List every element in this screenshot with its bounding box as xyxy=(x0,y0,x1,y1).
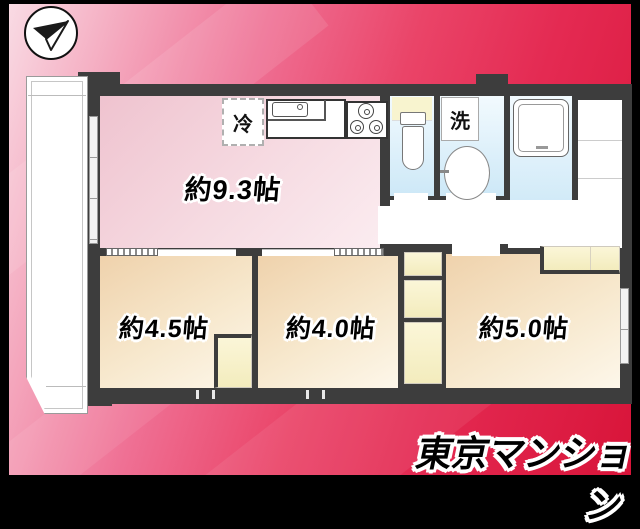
toilet-tank xyxy=(400,112,426,125)
balcony xyxy=(26,76,88,414)
bathtub-inner-line xyxy=(518,104,564,152)
room-label-ldk: 約9.3帖 xyxy=(156,168,309,207)
door-ldk-hall xyxy=(378,206,392,244)
window-tick xyxy=(196,390,199,399)
closet xyxy=(404,280,442,318)
north-arrow-icon xyxy=(24,6,78,60)
closet-bedroom-c xyxy=(540,246,620,274)
closet xyxy=(404,252,442,276)
refrigerator-label: 冷 xyxy=(233,108,253,137)
faucet-icon xyxy=(297,104,303,110)
stove-burner xyxy=(369,120,383,134)
toilet-bowl xyxy=(402,126,424,170)
stove-burner xyxy=(358,103,374,119)
door-bathroom xyxy=(520,210,558,224)
room-label-bedroom-c: 約5.0帖 xyxy=(452,309,595,345)
door-toilet xyxy=(394,193,428,202)
window xyxy=(89,116,98,244)
balcony-divider xyxy=(28,95,86,96)
balcony-divider xyxy=(46,386,86,387)
counter-line xyxy=(324,100,326,121)
door-bedroom-c xyxy=(452,242,500,256)
sliding-door xyxy=(106,248,158,256)
sliding-door xyxy=(334,248,384,256)
washbasin-handle xyxy=(440,170,449,173)
washing-machine-label: 洗 xyxy=(450,105,470,134)
room-label-bedroom-a: 約4.5帖 xyxy=(92,309,235,345)
kitchen-sink xyxy=(272,102,308,117)
hallway xyxy=(508,222,622,248)
window-tick xyxy=(212,390,215,399)
washbasin xyxy=(444,146,490,200)
counter-line xyxy=(268,119,326,121)
room-label-bedroom-b: 約4.0帖 xyxy=(259,309,402,345)
window-tick xyxy=(306,390,309,399)
stove-burner xyxy=(350,120,364,134)
washing-machine-space: 洗 xyxy=(441,97,479,141)
refrigerator-space: 冷 xyxy=(222,98,264,146)
door-opening xyxy=(158,249,236,256)
closet xyxy=(404,322,442,384)
window xyxy=(620,288,629,364)
logo-text: 東京マンション xyxy=(377,425,639,529)
entrance-step-line xyxy=(578,140,622,141)
wall-pillar xyxy=(476,74,508,86)
balcony-rail-line xyxy=(31,81,83,409)
door-opening xyxy=(262,249,334,256)
bathtub-handle xyxy=(536,146,548,149)
window-tick xyxy=(322,390,325,399)
entrance-step-line xyxy=(578,178,622,179)
